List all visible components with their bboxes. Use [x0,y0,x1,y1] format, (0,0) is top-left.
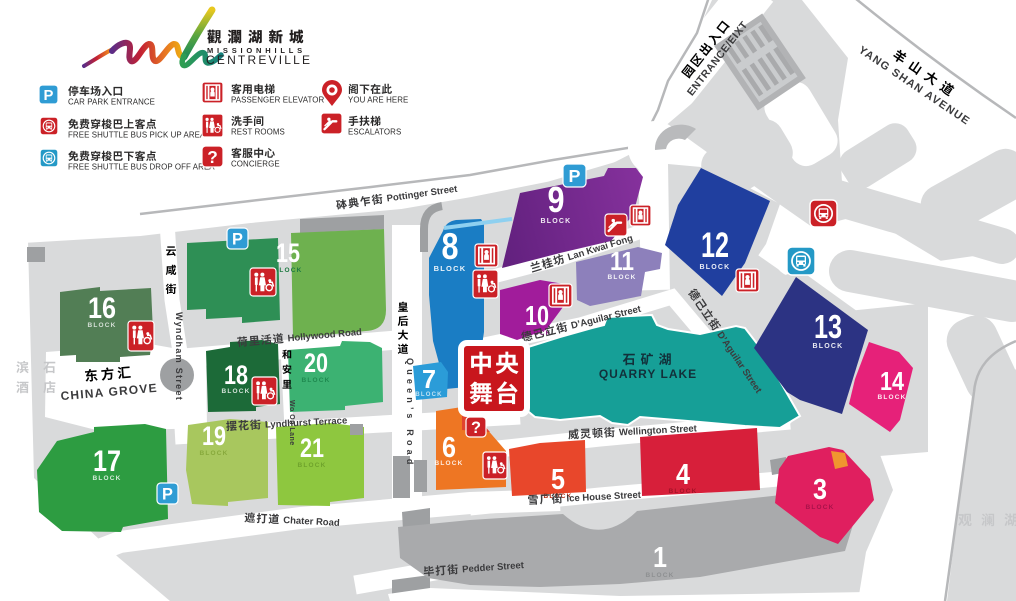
svg-text:BLOCK: BLOCK [434,264,467,273]
svg-text:12: 12 [701,226,729,265]
svg-text:BLOCK: BLOCK [199,450,228,457]
svg-text:BLOCK: BLOCK [645,572,674,579]
svg-text:17: 17 [93,445,121,478]
svg-text:FREE SHUTTLE BUS DROP OFF AREA: FREE SHUTTLE BUS DROP OFF AREA [68,163,215,172]
svg-text:P: P [232,230,243,248]
svg-text:P: P [162,485,173,503]
svg-text:?: ? [207,147,218,167]
svg-text:BLOCK: BLOCK [813,343,844,350]
svg-text:CAR PARK ENTRANCE: CAR PARK ENTRANCE [68,98,155,107]
svg-text:Queen’s Road: Queen’s Road [405,358,415,469]
svg-text:BLOCK: BLOCK [668,488,697,495]
svg-text:CONCIERGE: CONCIERGE [231,160,280,169]
svg-text:YOU ARE HERE: YOU ARE HERE [348,96,408,105]
svg-text:P: P [44,88,54,104]
svg-text:15: 15 [276,238,300,268]
svg-text:REST ROOMS: REST ROOMS [231,128,285,137]
svg-text:BLOCK: BLOCK [87,322,116,329]
svg-text:BLOCK: BLOCK [297,462,326,469]
svg-text:BLOCK: BLOCK [92,475,121,482]
svg-text:P: P [569,166,581,186]
svg-text:Wyndham Street: Wyndham Street [174,312,184,401]
svg-text:18: 18 [224,360,248,390]
svg-text:BLOCK: BLOCK [805,504,834,511]
svg-text:8: 8 [442,226,459,267]
svg-text:4: 4 [676,459,690,491]
svg-text:7: 7 [422,364,436,394]
svg-text:ESCALATORS: ESCALATORS [348,128,401,137]
svg-text:BLOCK: BLOCK [301,377,330,384]
svg-text:BLOCK: BLOCK [877,394,906,401]
svg-text:1: 1 [653,542,667,574]
svg-text:BLOCK: BLOCK [541,218,572,225]
svg-text:?: ? [471,419,481,437]
svg-text:16: 16 [88,292,116,325]
svg-text:BLOCK: BLOCK [415,392,442,398]
svg-text:13: 13 [814,308,842,345]
svg-text:QUARRY LAKE: QUARRY LAKE [599,367,697,381]
svg-text:FREE SHUTTLE BUS PICK UP AREA: FREE SHUTTLE BUS PICK UP AREA [68,131,206,140]
svg-text:21: 21 [300,433,324,463]
svg-text:11: 11 [610,246,634,276]
svg-text:CENTREVILLE: CENTREVILLE [206,53,312,67]
svg-text:9: 9 [548,179,565,220]
svg-text:BLOCK: BLOCK [700,264,731,271]
svg-text:BLOCK: BLOCK [273,267,302,274]
svg-text:PASSENGER ELEVATOR: PASSENGER ELEVATOR [231,96,325,105]
svg-text:5: 5 [551,464,565,496]
svg-text:BLOCK: BLOCK [434,460,463,467]
svg-text:10: 10 [525,300,549,331]
svg-text:19: 19 [202,421,226,451]
svg-text:14: 14 [880,366,904,396]
svg-text:BLOCK: BLOCK [221,388,250,395]
svg-text:20: 20 [304,348,328,378]
svg-text:BLOCK: BLOCK [607,274,636,281]
svg-text:3: 3 [813,474,827,506]
